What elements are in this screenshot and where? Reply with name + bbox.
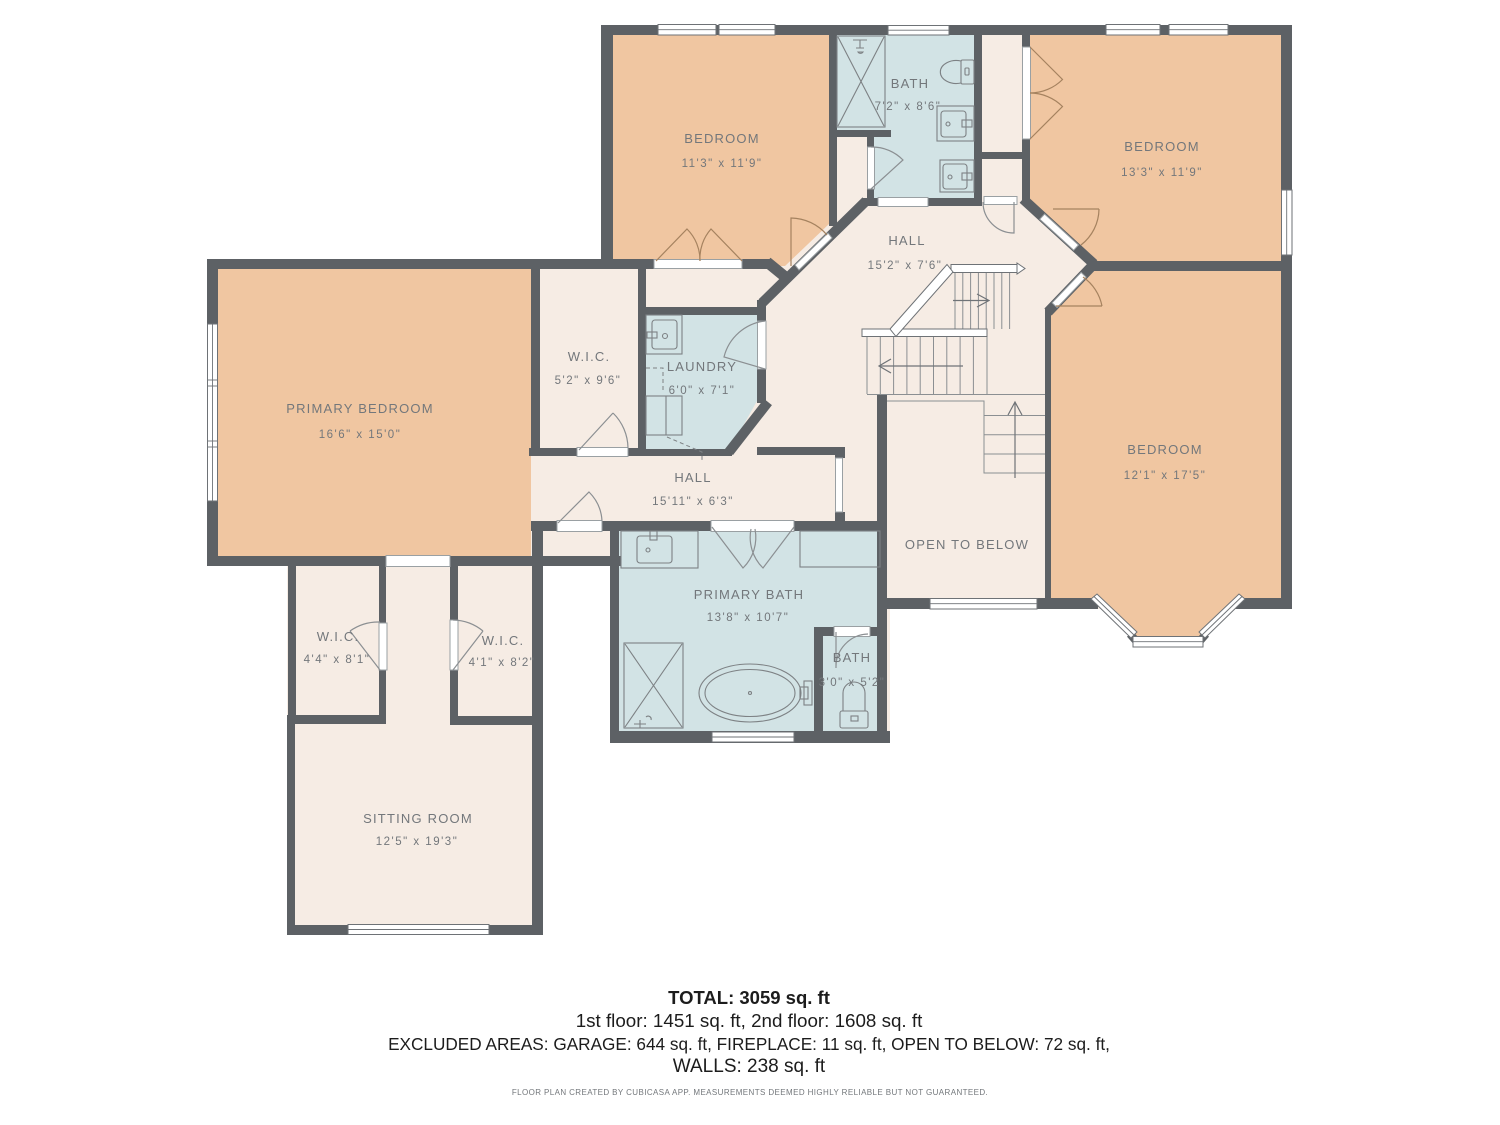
svg-text:BATH: BATH [833,650,872,665]
svg-text:FLOOR PLAN CREATED BY CUBICASA: FLOOR PLAN CREATED BY CUBICASA APP. MEAS… [512,1088,988,1097]
svg-text:W.I.C.: W.I.C. [317,629,360,644]
svg-text:13'3" x 11'9": 13'3" x 11'9" [1121,167,1203,179]
svg-text:12'1" x 17'5": 12'1" x 17'5" [1124,470,1207,482]
svg-text:12'5" x 19'3": 12'5" x 19'3" [376,836,459,848]
svg-text:PRIMARY BEDROOM: PRIMARY BEDROOM [286,401,434,416]
svg-text:7'2" x 8'6": 7'2" x 8'6" [875,101,942,113]
svg-text:15'2" x 7'6": 15'2" x 7'6" [868,260,943,272]
svg-text:BEDROOM: BEDROOM [1124,139,1200,154]
svg-text:OPEN TO BELOW: OPEN TO BELOW [905,537,1029,552]
svg-text:11'3" x 11'9": 11'3" x 11'9" [682,158,763,170]
svg-text:6'0" x 7'1": 6'0" x 7'1" [669,385,736,397]
svg-text:16'6" x 15'0": 16'6" x 15'0" [319,429,402,441]
svg-text:W.I.C.: W.I.C. [568,349,611,364]
svg-text:BEDROOM: BEDROOM [1127,442,1203,457]
svg-text:WALLS: 238 sq. ft: WALLS: 238 sq. ft [673,1056,826,1077]
svg-text:BATH: BATH [891,76,930,91]
svg-text:TOTAL: 3059 sq. ft: TOTAL: 3059 sq. ft [668,987,830,1008]
svg-text:HALL: HALL [888,233,925,248]
svg-text:SITTING ROOM: SITTING ROOM [363,811,473,826]
svg-text:13'8" x 10'7": 13'8" x 10'7" [707,612,790,624]
svg-text:15'11" x 6'3": 15'11" x 6'3" [652,496,734,508]
svg-text:3'0" x 5'2": 3'0" x 5'2" [819,677,886,689]
svg-text:4'1" x 8'2": 4'1" x 8'2" [469,657,536,669]
svg-text:5'2" x 9'6": 5'2" x 9'6" [555,375,622,387]
svg-text:4'4" x 8'1": 4'4" x 8'1" [304,654,371,666]
svg-text:1st floor: 1451 sq. ft, 2nd fl: 1st floor: 1451 sq. ft, 2nd floor: 1608 … [576,1010,923,1031]
svg-text:LAUNDRY: LAUNDRY [667,359,737,374]
svg-text:W.I.C.: W.I.C. [482,633,525,648]
svg-text:EXCLUDED AREAS: GARAGE: 644 sq: EXCLUDED AREAS: GARAGE: 644 sq. ft, FIRE… [388,1034,1110,1054]
svg-text:BEDROOM: BEDROOM [684,131,760,146]
svg-text:HALL: HALL [674,470,711,485]
svg-text:PRIMARY BATH: PRIMARY BATH [694,587,804,602]
